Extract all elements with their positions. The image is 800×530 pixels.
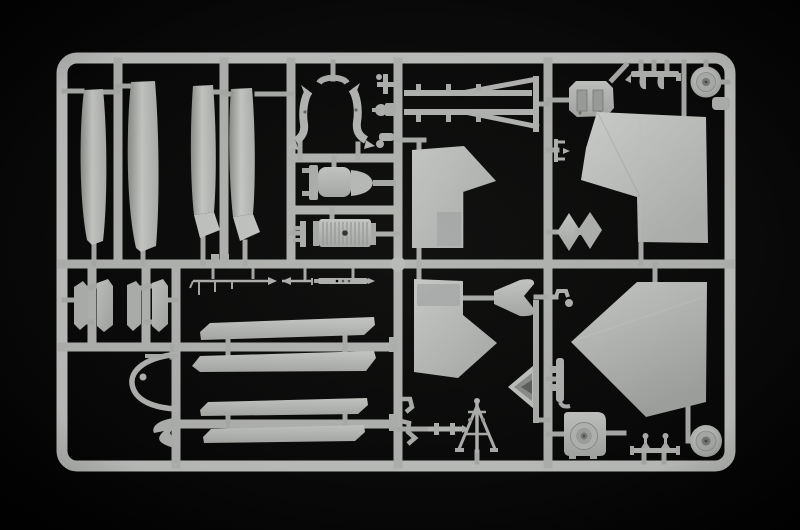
sprue-photo-canvas: [0, 0, 800, 530]
photo-vignette: [0, 0, 800, 530]
sprue-photo: [0, 0, 800, 530]
